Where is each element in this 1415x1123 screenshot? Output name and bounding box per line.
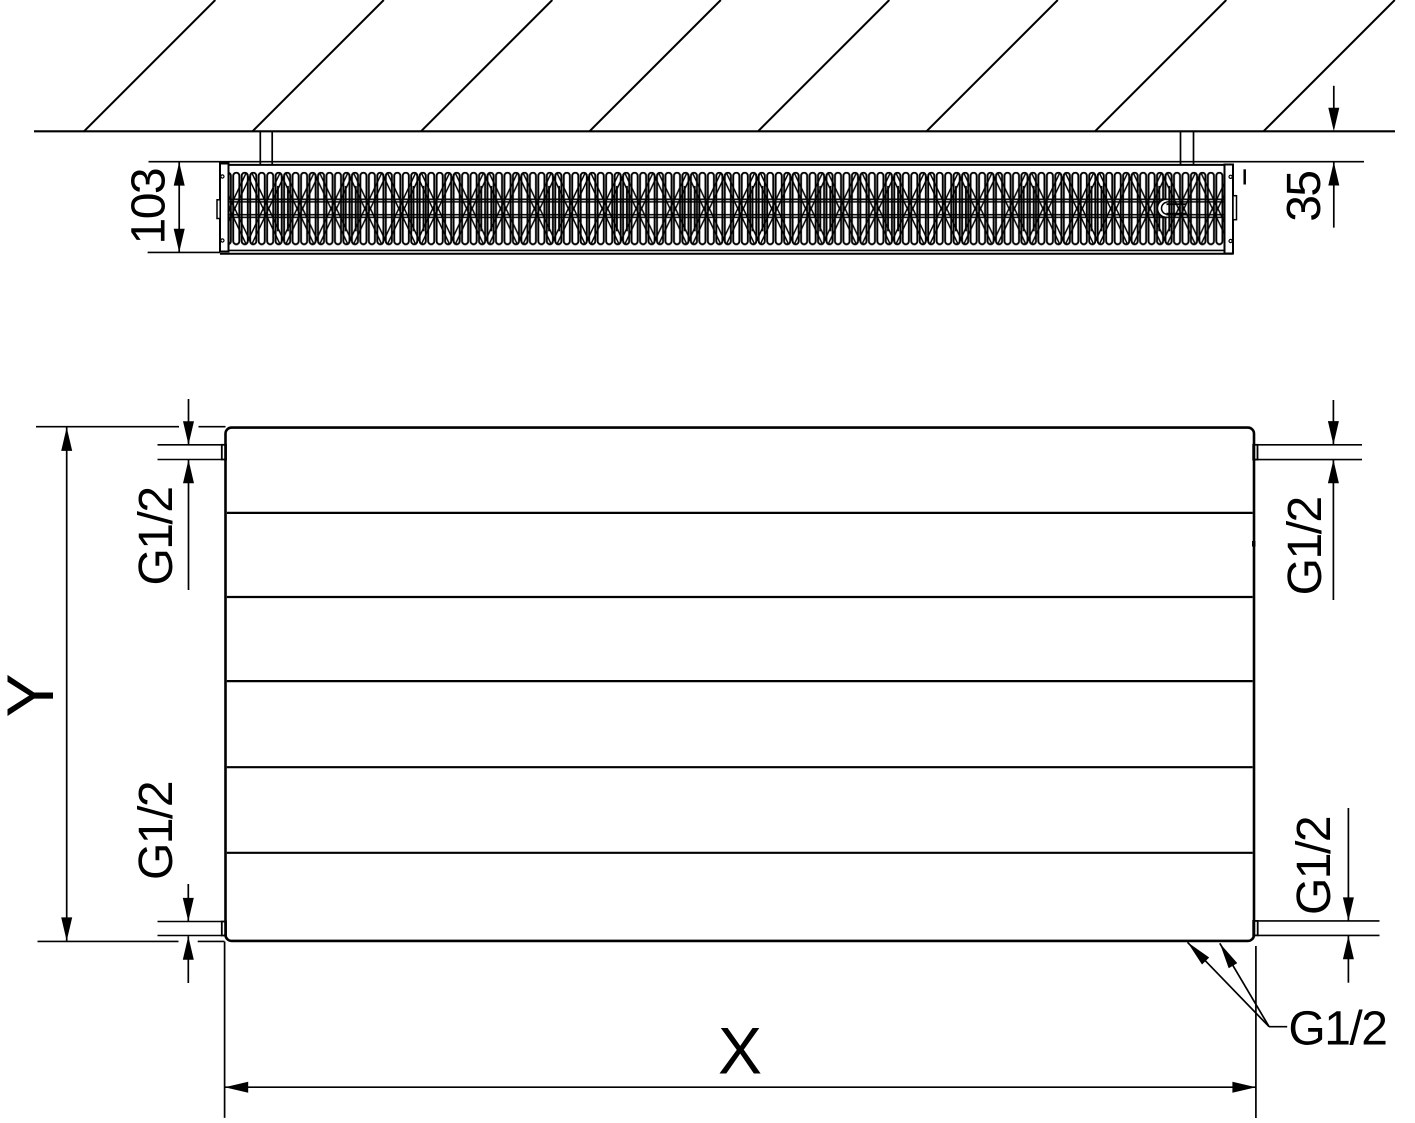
svg-text:X: X (718, 1014, 762, 1088)
svg-text:G1/2: G1/2 (130, 782, 183, 880)
svg-text:G1/2: G1/2 (130, 487, 183, 585)
svg-text:35: 35 (1278, 171, 1331, 221)
svg-text:Y: Y (0, 673, 67, 717)
svg-text:G1/2: G1/2 (1279, 497, 1332, 595)
svg-text:G1/2: G1/2 (1288, 1002, 1386, 1055)
svg-text:G1/2: G1/2 (1288, 817, 1341, 915)
svg-text:103: 103 (123, 169, 176, 245)
